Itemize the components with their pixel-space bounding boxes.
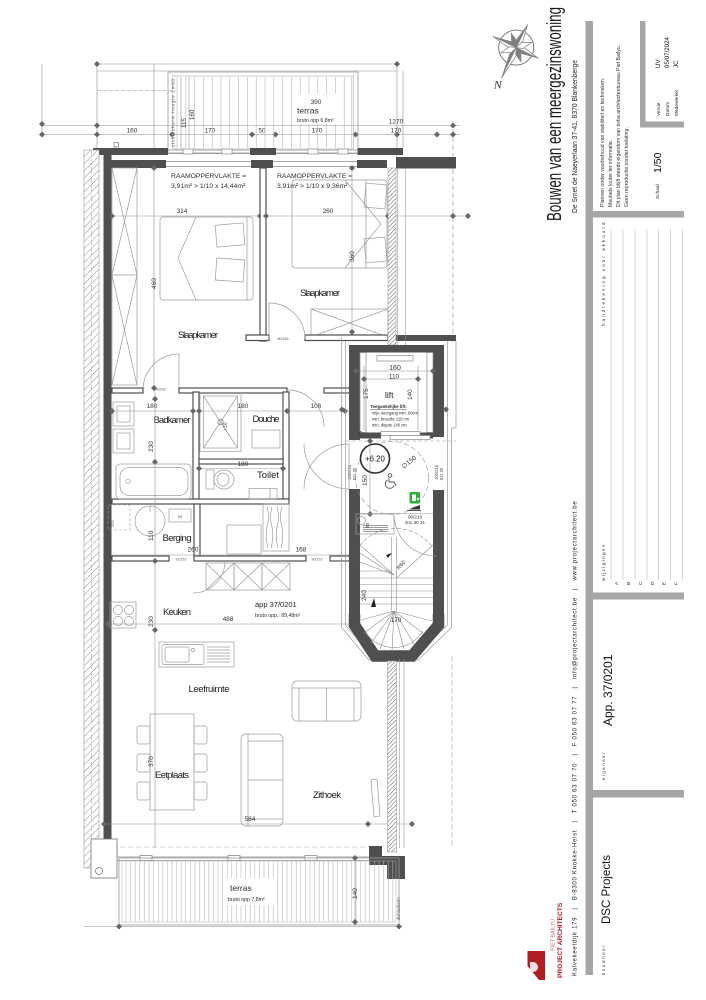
svg-text:150: 150 — [362, 475, 369, 486]
svg-text:15: 15 — [358, 431, 364, 437]
svg-text:91/216: 91/216 — [176, 558, 187, 562]
svg-text:Kalvekeetdijk 179 | B-8300: Kalvekeetdijk 179 | B-8300 Knokke-Heist … — [573, 501, 579, 976]
svg-text:160: 160 — [127, 128, 138, 135]
svg-text:160: 160 — [389, 365, 401, 372]
svg-text:1270: 1270 — [389, 119, 404, 126]
svg-text:Toegankelijke lift:: Toegankelijke lift: — [370, 404, 407, 409]
svg-text:3,91m² > 1/10 x 9,36m²: 3,91m² > 1/10 x 9,36m² — [277, 183, 348, 190]
svg-text:90/216: 90/216 — [408, 515, 422, 520]
svg-text:584: 584 — [245, 816, 256, 823]
svg-text:eigenaar: eigenaar — [601, 751, 606, 780]
svg-text:B: B — [626, 582, 632, 585]
svg-text:1/50: 1/50 — [652, 152, 664, 173]
svg-text:vrije doorgang min. 90cm: vrije doorgang min. 90cm — [372, 411, 419, 416]
svg-text:EI1 30: EI1 30 — [352, 467, 357, 480]
svg-text:bruto opp 7,8m²: bruto opp 7,8m² — [228, 897, 265, 903]
svg-text:De Smet de Naeyerlaan 37-41, 8: De Smet de Naeyerlaan 37-41, 8370 Blanke… — [572, 60, 579, 213]
svg-text:Keuken: Keuken — [163, 607, 191, 618]
svg-text:Zithoek: Zithoek — [313, 790, 341, 801]
svg-text:175: 175 — [363, 388, 370, 399]
svg-text:240: 240 — [361, 590, 368, 601]
svg-text:cv: cv — [178, 514, 183, 519]
svg-text:115: 115 — [181, 118, 188, 128]
svg-text:min. diepte 140 cm: min. diepte 140 cm — [372, 423, 407, 428]
svg-text:170: 170 — [205, 128, 216, 135]
svg-text:handtekening voor akkoord: handtekening voor akkoord — [601, 221, 606, 326]
svg-text:110: 110 — [389, 374, 400, 381]
svg-text:Medewerker: Medewerker — [674, 89, 680, 116]
svg-text:terras: terras — [230, 883, 252, 893]
svg-text:230: 230 — [148, 616, 155, 627]
svg-text:Schaal: Schaal — [655, 184, 661, 199]
svg-text:Dit plan blijft steeds eigendo: Dit plan blijft steeds eigendom van bvba… — [616, 45, 622, 207]
svg-text:F: F — [674, 582, 680, 585]
svg-text:140: 140 — [407, 389, 414, 400]
svg-text:90/216: 90/216 — [312, 558, 323, 562]
svg-text:bruto opp.: 89,48m²: bruto opp.: 89,48m² — [255, 613, 301, 619]
svg-text:Slaapkamer: Slaapkamer — [178, 330, 218, 341]
svg-text:Eetplaats: Eetplaats — [155, 770, 189, 781]
svg-text:Berging: Berging — [163, 533, 192, 544]
svg-text:260: 260 — [188, 547, 199, 554]
svg-text:min. breedte 110 cm: min. breedte 110 cm — [372, 417, 410, 422]
svg-text:Bouwen van een meergezinswonin: Bouwen van een meergezinswoning — [544, 7, 566, 221]
svg-text:460: 460 — [151, 278, 158, 289]
svg-text:EI1 30 zs: EI1 30 zs — [405, 520, 425, 525]
svg-text:zichtscherm hoogte 1m80: zichtscherm hoogte 1m80 — [171, 79, 176, 147]
svg-text:lift: lift — [385, 390, 394, 400]
svg-text:Badkamer: Badkamer — [154, 415, 191, 426]
svg-text:80: 80 — [365, 522, 370, 528]
svg-text:140: 140 — [352, 888, 359, 899]
svg-text:+6.20: +6.20 — [365, 455, 385, 464]
svg-text:180: 180 — [238, 403, 249, 410]
svg-text:RAAMOPPERVLAKTE =: RAAMOPPERVLAKTE = — [171, 173, 246, 180]
svg-text:90/216: 90/216 — [155, 388, 166, 392]
svg-text:314: 314 — [177, 208, 188, 215]
svg-text:180: 180 — [238, 461, 249, 468]
svg-text:bouwheer: bouwheer — [601, 944, 606, 975]
svg-text:230: 230 — [148, 441, 155, 452]
svg-text:Plannen onder voorbehoud van s: Plannen onder voorbehoud van stabiliteit… — [600, 78, 606, 207]
svg-text:110: 110 — [148, 530, 155, 541]
svg-text:wijzigingen: wijzigingen — [601, 543, 606, 581]
svg-text:Slaapkamer: Slaapkamer — [300, 288, 340, 299]
svg-text:PROJECT ARCHITECTS: PROJECT ARCHITECTS — [557, 902, 564, 978]
svg-text:Datum: Datum — [665, 102, 671, 116]
svg-text:C: C — [638, 581, 644, 585]
svg-text:EI1 30: EI1 30 — [439, 467, 444, 480]
svg-text:D: D — [650, 581, 656, 585]
svg-text:bruto opp 6,8m²: bruto opp 6,8m² — [297, 118, 334, 124]
svg-text:RAAMOPPERVLAKTE =: RAAMOPPERVLAKTE = — [277, 173, 352, 180]
svg-text:168: 168 — [296, 547, 307, 554]
svg-text:DSC Projects: DSC Projects — [601, 855, 613, 924]
svg-text:Meubels louter ter informatie.: Meubels louter ter informatie. — [608, 140, 614, 207]
svg-text:Douche: Douche — [253, 414, 280, 425]
svg-text:N: N — [493, 78, 503, 92]
svg-text:Leefruimte: Leefruimte — [189, 684, 230, 695]
svg-text:3,91m² > 1/10 x 14,44m²: 3,91m² > 1/10 x 14,44m² — [171, 183, 246, 190]
svg-text:dichtscherm: dichtscherm — [396, 897, 401, 920]
svg-text:terras: terras — [297, 106, 319, 116]
svg-text:+30: +30 — [223, 422, 229, 431]
svg-text:170: 170 — [312, 128, 323, 135]
svg-text:JC: JC — [673, 60, 680, 68]
svg-text:170: 170 — [391, 617, 402, 624]
svg-text:300: 300 — [110, 520, 115, 527]
svg-text:488: 488 — [223, 616, 234, 623]
svg-text:UV: UV — [655, 59, 662, 68]
svg-text:80/216: 80/216 — [278, 337, 289, 341]
svg-text:05/07/2024: 05/07/2024 — [664, 36, 671, 68]
svg-text:360: 360 — [349, 251, 356, 262]
svg-text:E: E — [662, 582, 668, 585]
svg-text:180: 180 — [147, 403, 158, 410]
svg-text:app 37/0201: app 37/0201 — [255, 600, 297, 609]
svg-text:PIET BAILYU: PIET BAILYU — [551, 919, 557, 951]
svg-text:Versie: Versie — [656, 102, 662, 116]
svg-text:260: 260 — [323, 208, 334, 215]
svg-text:370: 370 — [148, 756, 155, 767]
svg-text:Toilet: Toilet — [257, 470, 279, 481]
svg-text:App. 37/0201: App. 37/0201 — [601, 654, 615, 726]
svg-text:160: 160 — [189, 109, 196, 120]
svg-text:Geen reproductie zonder toelat: Geen reproductie zonder toelating. — [624, 127, 630, 207]
